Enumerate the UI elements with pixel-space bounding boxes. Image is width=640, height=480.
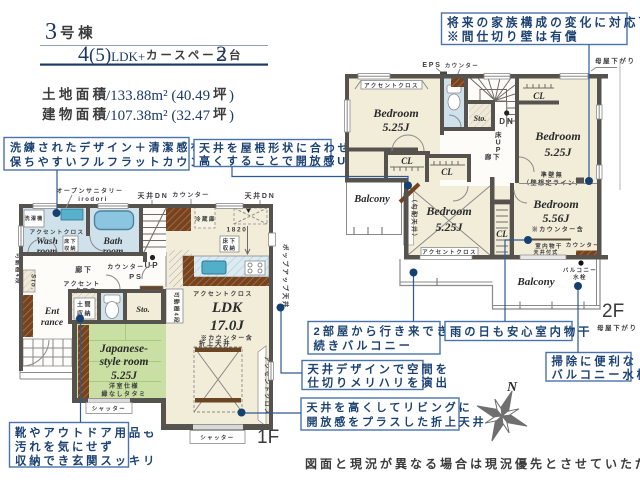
svg-text:CL: CL [441,167,453,177]
svg-text:CL: CL [401,156,413,166]
svg-text:折上天井: 折上天井 [199,339,232,348]
svg-text:1F: 1F [257,427,279,448]
svg-text:洗濯機: 洗濯機 [25,215,44,222]
svg-text:仕切りメリハリを演出: 仕切りメリハリを演出 [307,376,450,390]
svg-text:4(5)LDK+: 4(5)LDK+ [78,41,145,66]
svg-text:バルコニー水栓: バルコニー水栓 [552,368,640,382]
svg-text:Bedroom: Bedroom [372,106,418,120]
svg-text:靴やアウトドア用品も: 靴やアウトドア用品も [15,426,157,440]
svg-text:カウンター: カウンター [172,191,210,199]
svg-text:Balcony: Balcony [516,276,554,288]
svg-text:号棟: 号棟 [60,24,96,42]
svg-text:図面と現況が異なる場合は現況優先とさせていただきます。: 図面と現況が異なる場合は現況優先とさせていただきます。 [305,456,640,471]
svg-text:CL: CL [533,91,545,101]
svg-text:続きバルコニー: 続きバルコニー [314,339,413,353]
svg-text:坪: 坪 [213,87,230,102]
svg-text:/107.38m² (32.47: /107.38m² (32.47 [106,108,211,124]
svg-text:洋室仕様: 洋室仕様 [109,382,139,390]
svg-text:2F: 2F [602,301,624,322]
svg-text:廊下: 廊下 [485,152,501,161]
svg-text:坪: 坪 [213,107,230,122]
svg-text:可動棚4段: 可動棚4段 [173,292,181,324]
svg-text:天井を屋根形状に合わせて: 天井を屋根形状に合わせて [199,141,365,155]
svg-text:): ) [229,88,234,104]
svg-text:LDK: LDK [211,300,243,316]
svg-text:床下: 床下 [64,238,77,245]
svg-text:CL: CL [496,229,508,239]
svg-text:収納: 収納 [64,245,77,252]
svg-text:汚れを気にせず: 汚れを気にせず [15,440,115,454]
svg-text:準壁無: 準壁無 [541,171,564,179]
svg-text:style room: style room [99,356,149,368]
svg-text:洗練されたデザイン＋清潔感を: 洗練されたデザイン＋清潔感を [10,140,204,154]
svg-text:5.56J: 5.56J [543,211,571,225]
svg-text:土間: 土間 [77,301,92,309]
svg-text:冷蔵庫: 冷蔵庫 [195,215,216,223]
svg-text:天井DN: 天井DN [137,191,168,200]
svg-text:廊下: 廊下 [75,265,93,274]
svg-text:※カウンター含: ※カウンター含 [532,226,585,234]
svg-text:Bath: Bath [102,237,122,247]
svg-text:irodori: irodori [78,197,108,203]
svg-text:カウンター: カウンター [566,241,600,249]
svg-text:Bedroom: Bedroom [532,197,578,211]
svg-text:縁なしタタミ: 縁なしタタミ [101,390,146,398]
svg-text:収納: 収納 [223,244,237,252]
svg-text:3: 3 [45,19,57,45]
svg-text:土地面積: 土地面積 [42,86,110,102]
svg-text:U: U [496,140,503,147]
svg-text:床下: 床下 [223,237,237,245]
svg-text:Bedroom: Bedroom [534,129,580,143]
svg-text:建物面積: 建物面積 [41,106,110,122]
svg-text:シャッター: シャッター [92,405,126,413]
svg-text:シャッター: シャッター [200,434,234,442]
svg-text:17.0J: 17.0J [210,318,244,334]
svg-text:rance: rance [41,318,64,328]
svg-text:アクセントクロス: アクセントクロス [30,228,85,236]
svg-text:P: P [496,147,502,154]
svg-text:カウンター: カウンター [445,62,479,70]
svg-text:Sto.: Sto. [474,114,487,123]
svg-text:水栓: 水栓 [573,273,587,281]
svg-text:Sto.: Sto. [30,274,36,291]
svg-text:N: N [506,380,518,395]
svg-text:2部屋から行き来できる: 2部屋から行き来できる [314,324,465,338]
svg-text:開放感をプラスした折上天井: 開放感をプラスした折上天井 [307,415,487,429]
svg-text:1820: 1820 [227,227,248,234]
svg-text:※間仕切り壁は有償: ※間仕切り壁は有償 [447,30,580,44]
svg-text:天井DN: 天井DN [244,191,275,200]
svg-text:（勾配天井）: （勾配天井） [410,196,418,241]
svg-text:アクセントクロス: アクセントクロス [364,82,419,90]
svg-text:2: 2 [216,41,227,66]
svg-text:室内物干: 室内物干 [535,242,563,250]
svg-text:将来の家族構成の変化に対応可能: 将来の家族構成の変化に対応可能 [447,16,640,30]
svg-text:母屋下がり: 母屋下がり [595,56,636,65]
svg-text:5.25J: 5.25J [111,370,138,382]
svg-text:床: 床 [495,130,503,139]
svg-text:5.25J: 5.25J [545,145,573,159]
svg-text:オープンサニタリー: オープンサニタリー [56,187,123,195]
svg-text:ポップアップ天井: ポップアップ天井 [282,244,291,309]
svg-text:バルコニー: バルコニー [563,267,597,274]
svg-text:雨の日も安心室内物干: 雨の日も安心室内物干 [450,325,592,339]
svg-text:カウンター: カウンター [107,263,145,271]
svg-text:Bedroom: Bedroom [425,204,471,218]
svg-text:5.25J: 5.25J [383,120,411,134]
svg-text:天井デザインで空間を: 天井デザインで空間を [308,362,450,376]
svg-text:Sto.: Sto. [136,304,149,314]
svg-text:Balcony: Balcony [353,194,390,205]
svg-text:アクセント: アクセント [63,280,100,288]
svg-text:/133.88m² (40.49: /133.88m² (40.49 [106,88,210,104]
svg-text:DN: DN [499,117,515,126]
svg-text:アクセントクロス: アクセントクロス [422,248,477,256]
svg-text:Ent: Ent [44,307,60,317]
svg-text:掃除に便利な: 掃除に便利な [552,354,637,368]
svg-text:アクセントクロス: アクセントクロス [193,290,253,298]
svg-text:台: 台 [229,48,243,62]
svg-text:天井を高くしてリビングに: 天井を高くしてリビングに [307,400,473,414]
svg-text:): ) [229,108,234,124]
svg-text:EPS: EPS [422,62,441,69]
svg-text:Japanese-: Japanese- [99,343,148,355]
svg-text:5.25J: 5.25J [436,220,464,234]
svg-text:収納でき玄関スッキリ: 収納でき玄関スッキリ [15,454,157,468]
svg-text:母屋下がり: 母屋下がり [597,323,638,332]
svg-text:高くすることで開放感UP: 高くすることで開放感UP [199,154,358,168]
svg-text:PS: PS [129,272,143,281]
